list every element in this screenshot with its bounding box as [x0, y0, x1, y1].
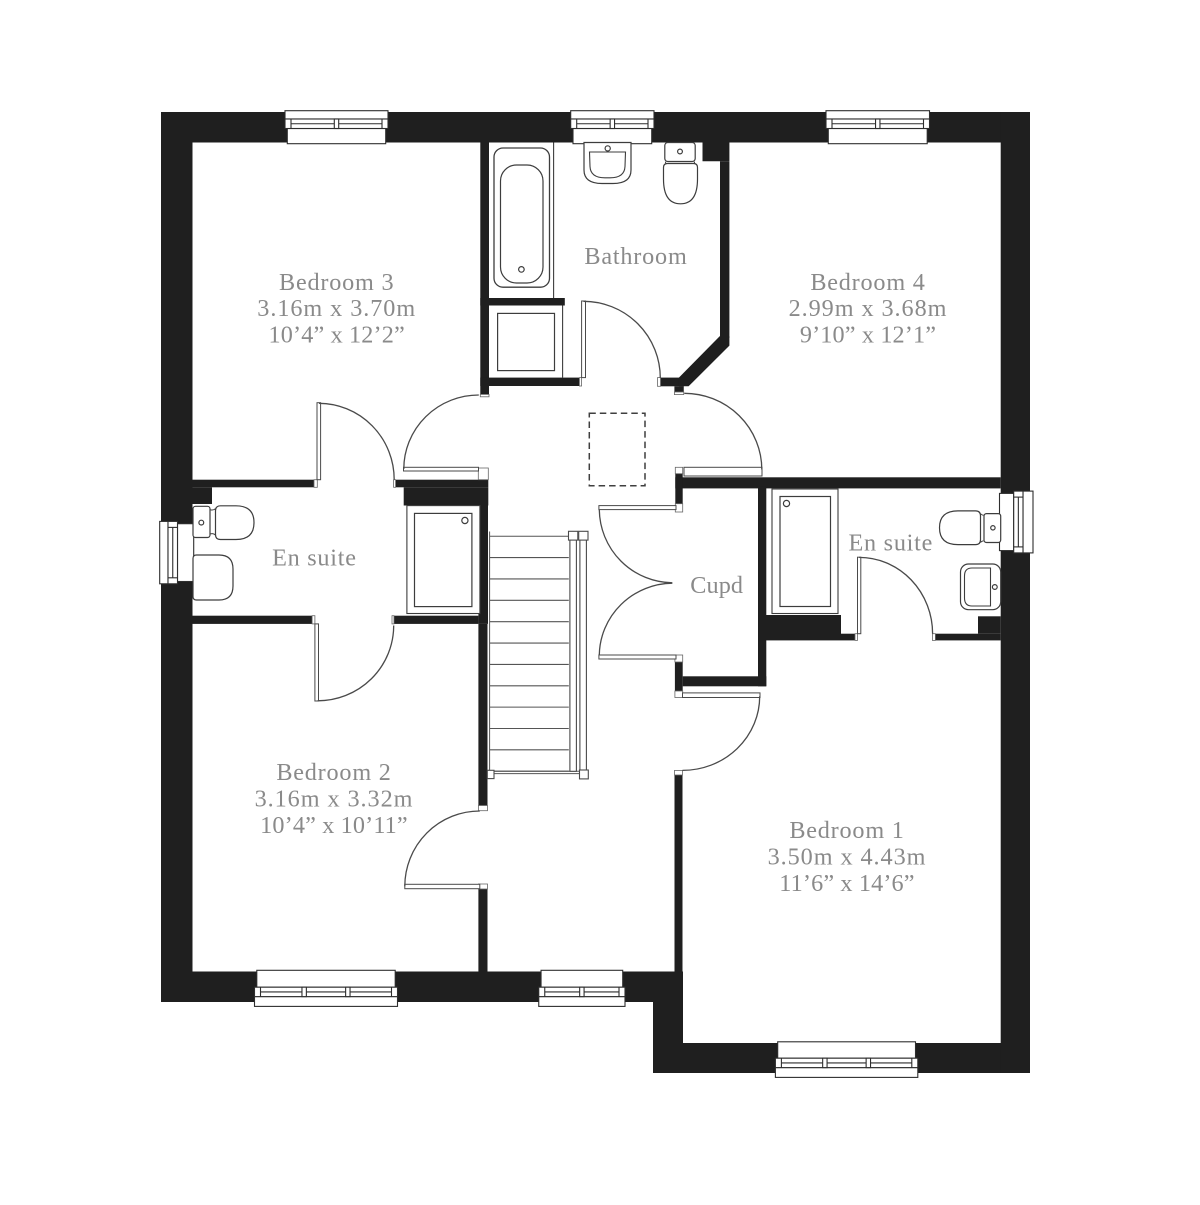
- svg-text:Bathroom: Bathroom: [584, 243, 687, 270]
- svg-text:Bedroom 4: Bedroom 4: [810, 269, 925, 296]
- svg-text:10’4” x 12’2”: 10’4” x 12’2”: [269, 322, 405, 349]
- svg-text:Bedroom 2: Bedroom 2: [276, 759, 391, 786]
- svg-text:Bedroom 1: Bedroom 1: [789, 817, 904, 844]
- svg-text:3.16m x 3.70m: 3.16m x 3.70m: [257, 295, 416, 322]
- svg-text:3.16m x 3.32m: 3.16m x 3.32m: [255, 786, 414, 813]
- svg-text:Bedroom 3: Bedroom 3: [279, 269, 394, 296]
- svg-text:11’6” x 14’6”: 11’6” x 14’6”: [779, 870, 914, 897]
- svg-text:En suite: En suite: [272, 544, 357, 571]
- svg-text:10’4” x 10’11”: 10’4” x 10’11”: [260, 812, 408, 839]
- svg-text:9’10” x 12’1”: 9’10” x 12’1”: [800, 322, 936, 349]
- svg-text:2.99m x 3.68m: 2.99m x 3.68m: [789, 295, 948, 322]
- svg-text:Cupd: Cupd: [690, 572, 743, 599]
- svg-text:En suite: En suite: [848, 530, 933, 557]
- svg-text:3.50m x 4.43m: 3.50m x 4.43m: [768, 844, 927, 871]
